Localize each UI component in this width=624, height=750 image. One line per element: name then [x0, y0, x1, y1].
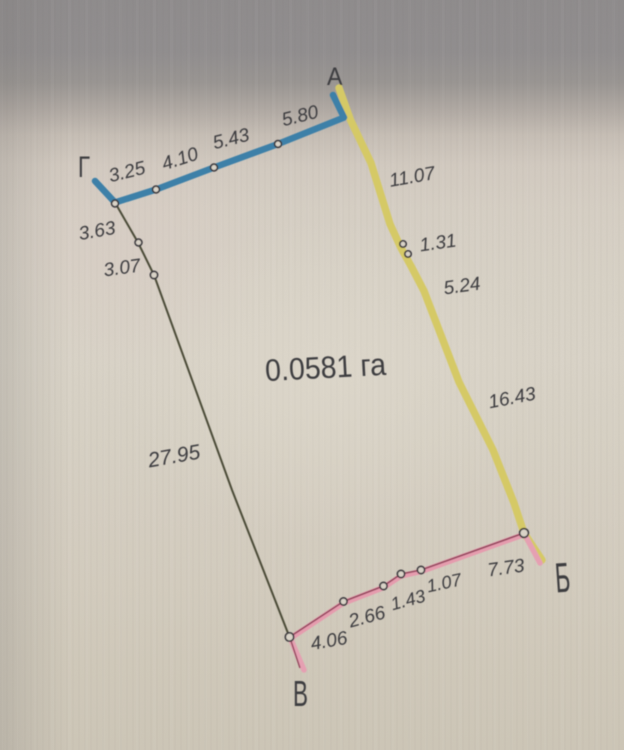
svg-text:Г: Г: [78, 151, 90, 184]
svg-text:В: В: [293, 673, 308, 714]
svg-text:А: А: [327, 63, 343, 91]
svg-text:0.0581 га: 0.0581 га: [264, 347, 387, 388]
